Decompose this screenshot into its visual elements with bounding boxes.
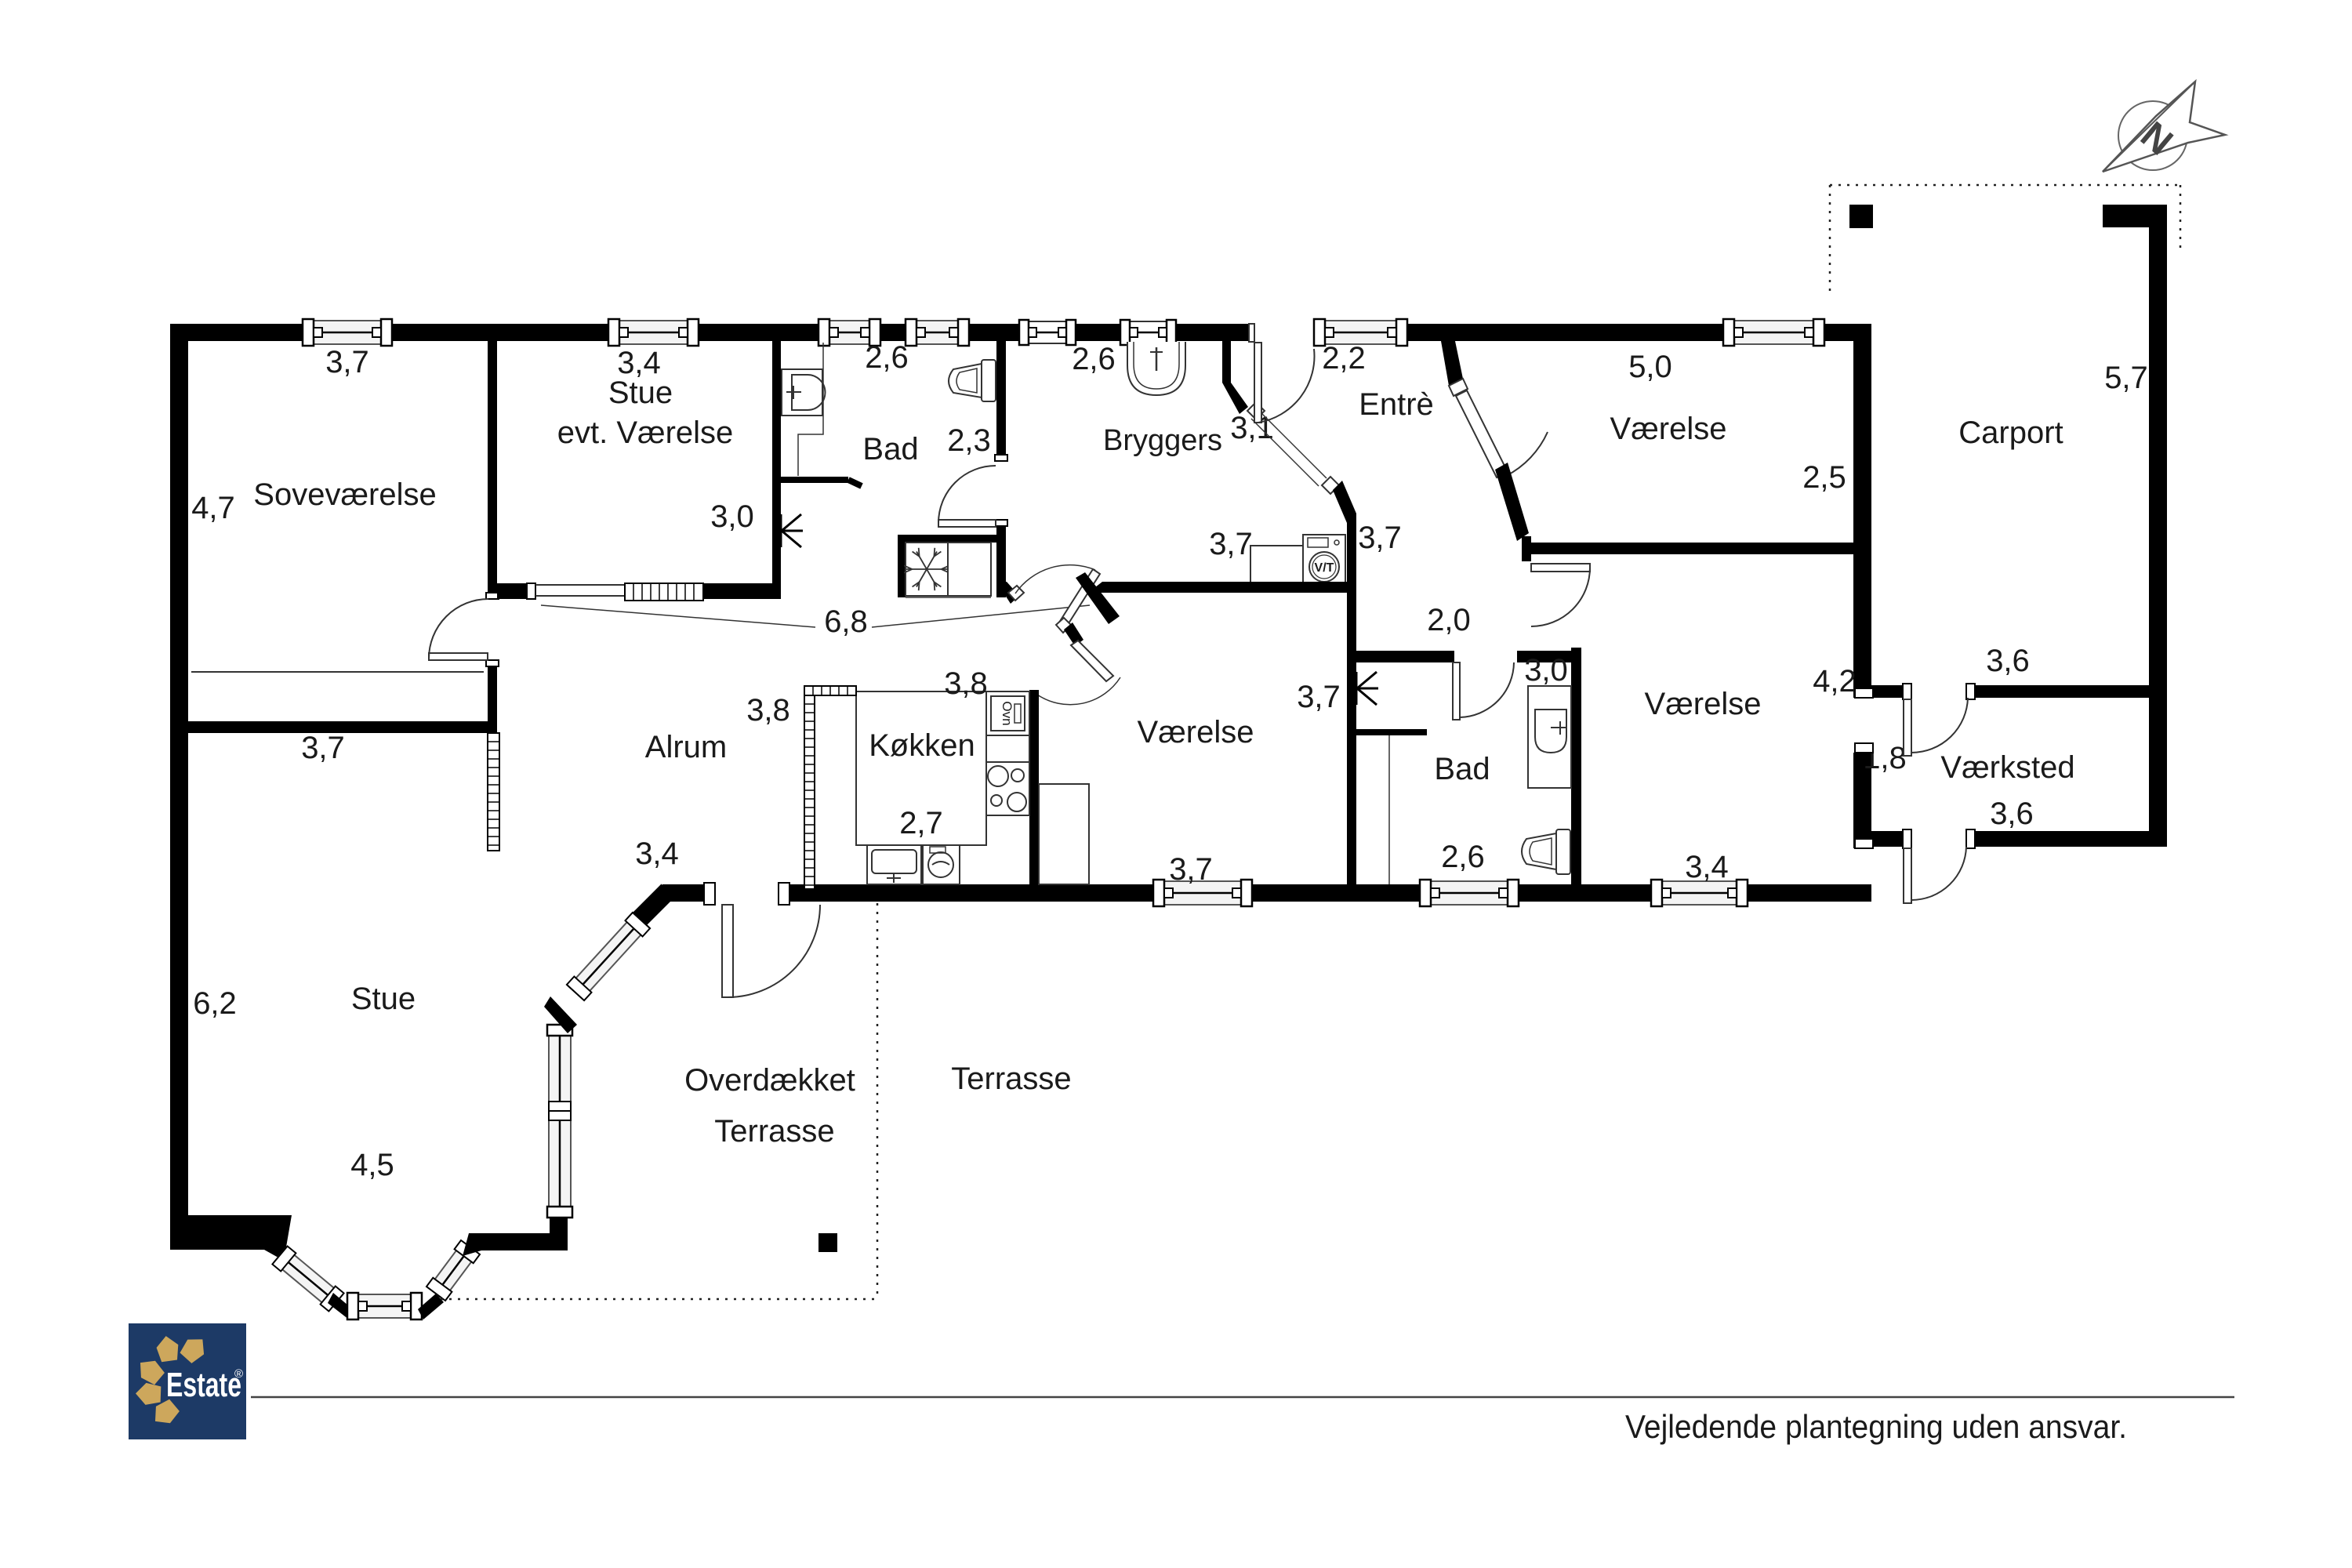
svg-text:Værelse: Værelse [1138,715,1254,750]
svg-text:Stue: Stue [351,982,416,1016]
svg-text:Bad: Bad [1434,752,1490,786]
svg-text:2,6: 2,6 [865,340,909,375]
svg-text:2,7: 2,7 [899,806,943,840]
svg-text:2,6: 2,6 [1441,840,1485,874]
svg-text:3,4: 3,4 [1685,850,1729,884]
svg-text:3,7: 3,7 [1297,680,1341,714]
svg-text:Bryggers: Bryggers [1103,424,1222,457]
svg-text:3,0: 3,0 [710,499,754,534]
svg-text:3,8: 3,8 [746,693,790,728]
svg-text:3,4: 3,4 [617,346,661,380]
svg-text:evt. Værelse: evt. Værelse [557,416,734,450]
svg-text:2,2: 2,2 [1322,341,1366,376]
svg-text:3,7: 3,7 [301,731,345,765]
svg-text:V/T: V/T [1315,561,1334,575]
svg-text:3,0: 3,0 [1524,653,1568,688]
svg-text:Terrasse: Terrasse [951,1062,1071,1096]
svg-text:3,4: 3,4 [635,837,679,871]
svg-text:4,7: 4,7 [191,491,235,525]
svg-text:6,2: 6,2 [193,986,237,1021]
svg-text:3,7: 3,7 [1169,852,1213,887]
svg-text:Vejledende plantegning uden an: Vejledende plantegning uden ansvar. [1625,1408,2127,1445]
svg-text:®: ® [234,1367,243,1381]
svg-text:Estate: Estate [166,1366,241,1404]
svg-text:Værelse: Værelse [1645,687,1762,721]
svg-text:3,7: 3,7 [1358,521,1402,555]
svg-text:Køkken: Køkken [869,728,975,763]
svg-text:4,5: 4,5 [350,1148,394,1182]
svg-text:Overdækket: Overdækket [684,1063,855,1098]
svg-text:Stue: Stue [608,376,673,410]
svg-text:Værelse: Værelse [1610,412,1727,446]
svg-text:Alrum: Alrum [645,730,727,764]
svg-text:2,0: 2,0 [1427,603,1471,637]
svg-text:Bad: Bad [862,432,918,466]
svg-text:3,7: 3,7 [325,345,369,379]
svg-text:2,6: 2,6 [1072,342,1116,376]
svg-text:Carport: Carport [1958,416,2063,450]
svg-text:3,8: 3,8 [944,666,988,701]
svg-text:5,7: 5,7 [2104,361,2148,395]
svg-text:Terrasse: Terrasse [714,1114,834,1149]
svg-text:4,2: 4,2 [1813,664,1857,699]
svg-text:5,0: 5,0 [1628,350,1672,384]
svg-text:2,3: 2,3 [947,423,991,458]
svg-text:3,6: 3,6 [1990,797,2034,831]
svg-text:Entrè: Entrè [1359,387,1434,422]
svg-text:Værksted: Værksted [1940,750,2074,785]
svg-text:3,7: 3,7 [1209,527,1253,561]
svg-text:Ovn: Ovn [1000,701,1014,725]
svg-text:3,6: 3,6 [1986,644,2030,678]
svg-text:2,5: 2,5 [1802,460,1846,495]
svg-text:Soveværelse: Soveværelse [253,477,436,512]
svg-text:6,8: 6,8 [824,604,868,639]
